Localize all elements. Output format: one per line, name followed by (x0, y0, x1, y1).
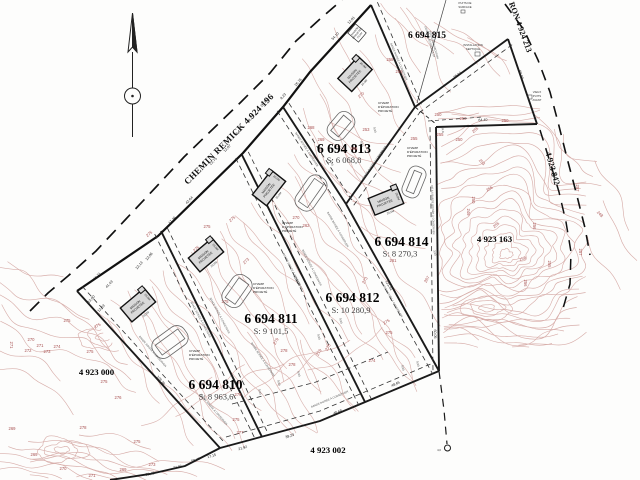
svg-text:SURFACE: SURFACE (458, 5, 471, 9)
svg-text:270: 270 (60, 466, 68, 471)
svg-text:268: 268 (308, 125, 316, 130)
svg-text:271: 271 (89, 473, 97, 478)
svg-text:S: 10 280,9: S: 10 280,9 (332, 305, 371, 315)
svg-text:269: 269 (31, 452, 39, 457)
svg-text:6 694 811: 6 694 811 (244, 311, 298, 326)
svg-text:64,40: 64,40 (478, 118, 487, 122)
svg-text:250: 250 (456, 137, 464, 142)
svg-text:275: 275 (64, 318, 72, 323)
svg-text:274: 274 (54, 344, 62, 349)
svg-text:60,05: 60,05 (433, 329, 437, 338)
svg-text:266: 266 (351, 146, 359, 151)
svg-text:4 923 002: 4 923 002 (310, 445, 346, 455)
svg-text:273: 273 (149, 462, 157, 467)
svg-text:276: 276 (235, 392, 243, 397)
svg-text:271: 271 (9, 342, 14, 350)
svg-text:6 694 814: 6 694 814 (375, 234, 429, 249)
svg-text:4 923 000: 4 923 000 (79, 367, 115, 377)
svg-text:275: 275 (101, 379, 109, 384)
svg-text:277: 277 (237, 430, 245, 435)
svg-text:AVANT: AVANT (533, 98, 542, 102)
svg-text:275: 275 (222, 299, 230, 304)
svg-text:S: 8 270,3: S: 8 270,3 (383, 249, 418, 259)
svg-text:257: 257 (575, 185, 580, 193)
svg-text:257: 257 (578, 249, 583, 257)
svg-text:4,0: 4,0 (437, 448, 441, 452)
svg-text:271: 271 (37, 343, 45, 348)
svg-text:261: 261 (390, 258, 398, 263)
svg-text:250: 250 (435, 112, 443, 117)
svg-text:6 694 810: 6 694 810 (189, 377, 243, 392)
svg-text:278: 278 (289, 362, 297, 367)
svg-text:272: 272 (25, 348, 33, 353)
svg-text:6 694 812: 6 694 812 (326, 290, 380, 305)
svg-text:275: 275 (386, 330, 394, 335)
svg-text:255: 255 (411, 136, 419, 141)
svg-text:273: 273 (44, 349, 52, 354)
svg-text:258: 258 (387, 57, 395, 62)
svg-text:256: 256 (523, 280, 528, 288)
svg-text:250: 250 (502, 118, 510, 123)
svg-text:PROJETÉ: PROJETÉ (253, 289, 267, 294)
svg-text:270: 270 (28, 337, 36, 342)
svg-text:269: 269 (318, 137, 326, 142)
svg-text:255: 255 (437, 132, 445, 137)
svg-text:PROJETÉ: PROJETÉ (189, 356, 203, 361)
svg-text:249: 249 (466, 209, 471, 217)
svg-text:4 923 163: 4 923 163 (477, 234, 513, 244)
svg-text:PROJETÉ: PROJETÉ (378, 108, 392, 113)
svg-text:256: 256 (532, 223, 537, 231)
svg-text:253: 253 (363, 127, 371, 132)
svg-text:275: 275 (233, 417, 241, 422)
svg-text:278: 278 (80, 425, 88, 430)
svg-text:SEPTIQUE: SEPTIQUE (466, 47, 480, 51)
svg-text:270: 270 (293, 215, 301, 220)
svg-text:255: 255 (547, 261, 552, 269)
svg-text:262: 262 (303, 223, 311, 228)
svg-text:275: 275 (87, 349, 95, 354)
svg-text:PROJETÉ: PROJETÉ (407, 153, 421, 158)
svg-text:276: 276 (115, 395, 123, 400)
svg-text:269: 269 (9, 426, 17, 431)
svg-text:S: 9 101,5: S: 9 101,5 (254, 326, 289, 336)
svg-text:274: 274 (369, 358, 377, 363)
svg-text:275: 275 (134, 439, 142, 444)
svg-text:PROJETÉ: PROJETÉ (282, 228, 296, 233)
svg-text:269: 269 (120, 467, 128, 472)
svg-text:278: 278 (281, 348, 289, 353)
svg-text:250: 250 (471, 197, 476, 205)
svg-text:275: 275 (204, 224, 212, 229)
svg-text:259: 259 (396, 69, 404, 74)
